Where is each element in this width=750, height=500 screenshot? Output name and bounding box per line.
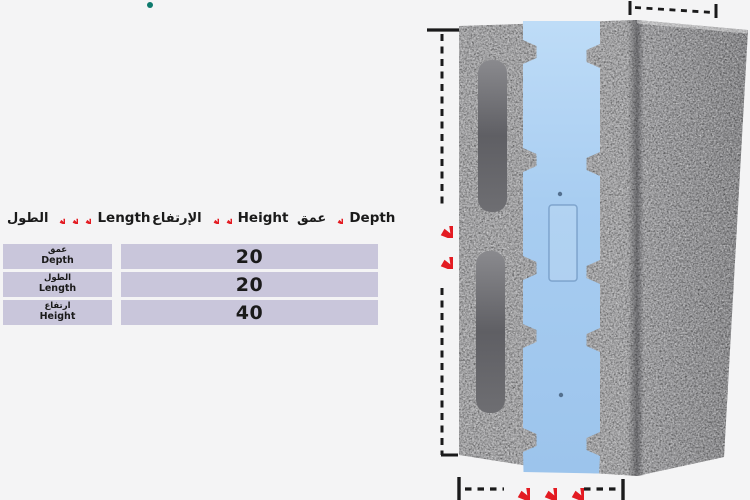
hollow-core-top [478,60,507,212]
asterisk-icon [428,213,453,238]
asterisk-icon [532,475,557,500]
asterisk-icon [505,475,530,500]
concrete-block [459,20,748,476]
height-dimension-asterisks [428,213,453,269]
length-dimension-asterisks [505,475,584,500]
hollow-core-bottom [476,251,505,413]
depth-dimension-line [630,1,716,18]
block-photo [0,0,750,500]
asterisk-icon [428,244,453,269]
asterisk-icon [559,475,584,500]
foam-emboss [549,205,577,281]
page: الطول Length الإرتفاع Height عمق Depth ع… [0,0,750,500]
